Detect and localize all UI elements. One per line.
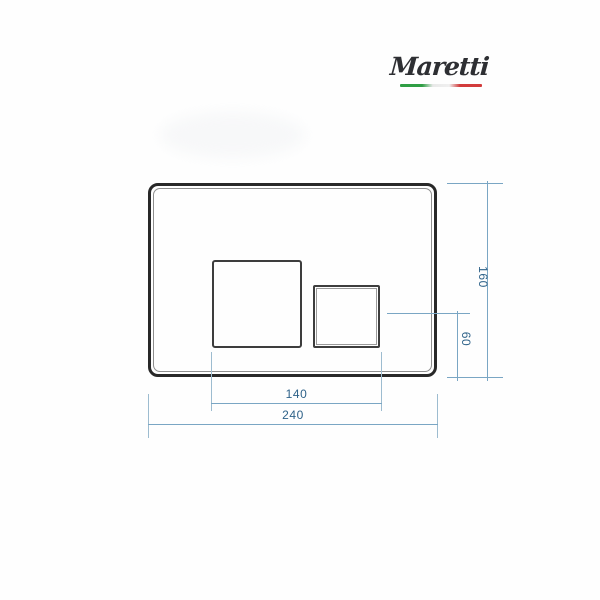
extension-line-top-right [447,183,503,184]
brand-name: Maretti [389,52,501,82]
product-dimension-diagram: Maretti 160 60 140 240 [0,0,600,600]
large-flush-button [212,260,302,348]
extension-line-bottom-right [447,377,503,378]
brand-logo: Maretti [390,52,500,96]
dimension-line-140 [211,403,382,404]
dimension-label-140: 140 [211,388,382,400]
dimension-label-60: 60 [460,332,472,347]
flush-plate-outline [148,183,437,377]
dimension-line-60 [457,311,458,381]
small-flush-button [313,285,380,348]
italian-flag-underline [400,84,482,87]
small-flush-button-inner-line [316,288,377,345]
smudge-artifact [160,112,305,158]
dimension-label-240: 240 [148,409,438,421]
dimension-label-160: 160 [477,266,489,288]
dimension-line-240 [148,424,438,425]
